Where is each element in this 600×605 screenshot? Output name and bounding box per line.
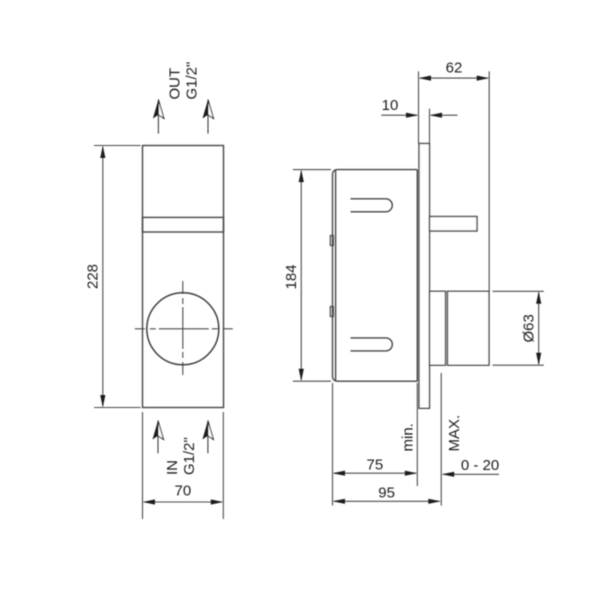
svg-text:G1/2": G1/2" [184, 62, 201, 100]
svg-text:min.: min. [400, 423, 417, 451]
svg-text:Ø63: Ø63 [521, 314, 538, 342]
svg-text:MAX.: MAX. [446, 415, 463, 452]
svg-text:G1/2": G1/2" [181, 437, 198, 475]
svg-text:0 - 20: 0 - 20 [461, 457, 499, 474]
svg-text:184: 184 [283, 264, 300, 289]
svg-text:62: 62 [446, 59, 463, 76]
svg-text:75: 75 [367, 457, 384, 474]
svg-text:IN: IN [164, 460, 181, 475]
svg-text:228: 228 [85, 264, 102, 289]
svg-text:OUT: OUT [167, 68, 184, 100]
svg-text:70: 70 [175, 483, 192, 500]
svg-text:95: 95 [378, 485, 395, 502]
svg-text:10: 10 [382, 97, 399, 114]
